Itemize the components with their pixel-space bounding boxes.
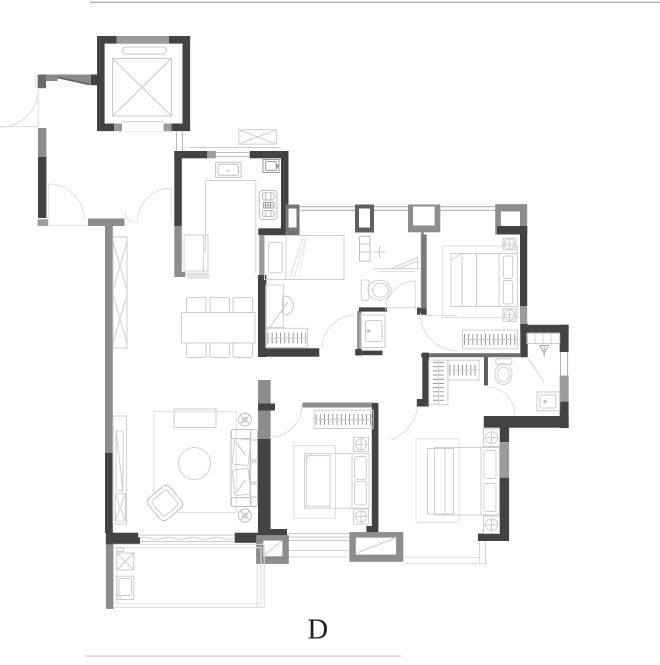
svg-text:D: D bbox=[308, 615, 329, 646]
